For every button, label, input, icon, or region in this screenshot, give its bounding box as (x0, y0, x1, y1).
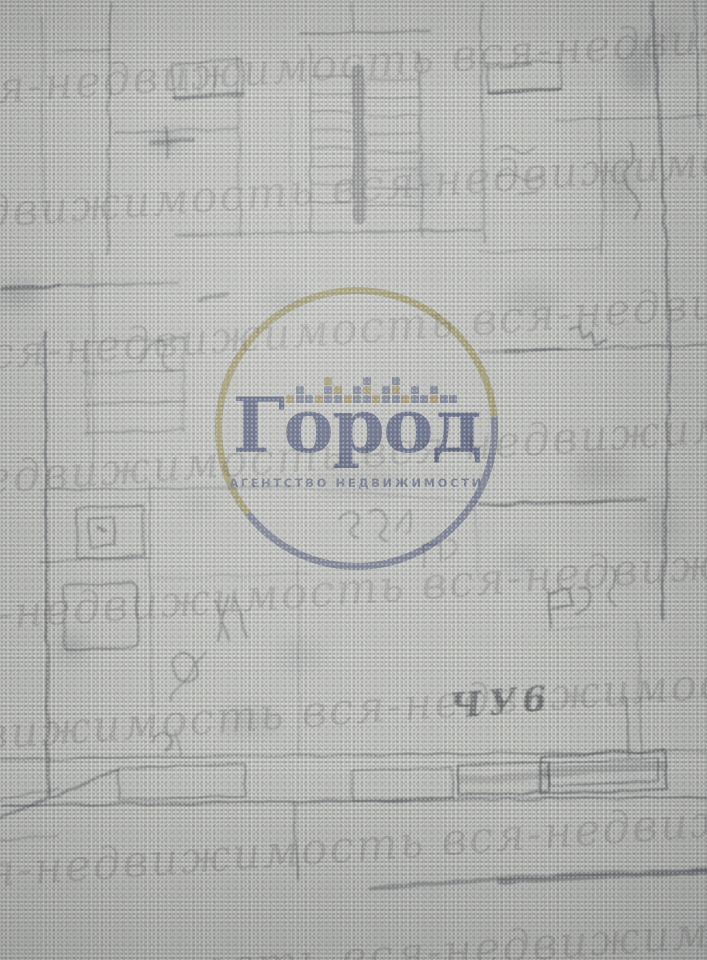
agency-logo: Город агентство недвижимости (214, 286, 499, 571)
logo-tagline: агентство недвижимости (214, 476, 499, 490)
watermark-row: вся-недвижимость вся-недвижимость вся-не… (0, 617, 707, 774)
watermark-row: вся-недвижимость вся-недвижимость вся-не… (0, 0, 707, 118)
watermark-row: вся-недвижимость вся-недвижимость вся-не… (0, 745, 707, 902)
watermark-row: вся-недвижимость вся-недвижимость вся-не… (0, 93, 707, 250)
logo-title: Город (214, 388, 499, 464)
photographed-floor-plan: вся-недвижимость вся-недвижимость вся-не… (0, 0, 707, 960)
